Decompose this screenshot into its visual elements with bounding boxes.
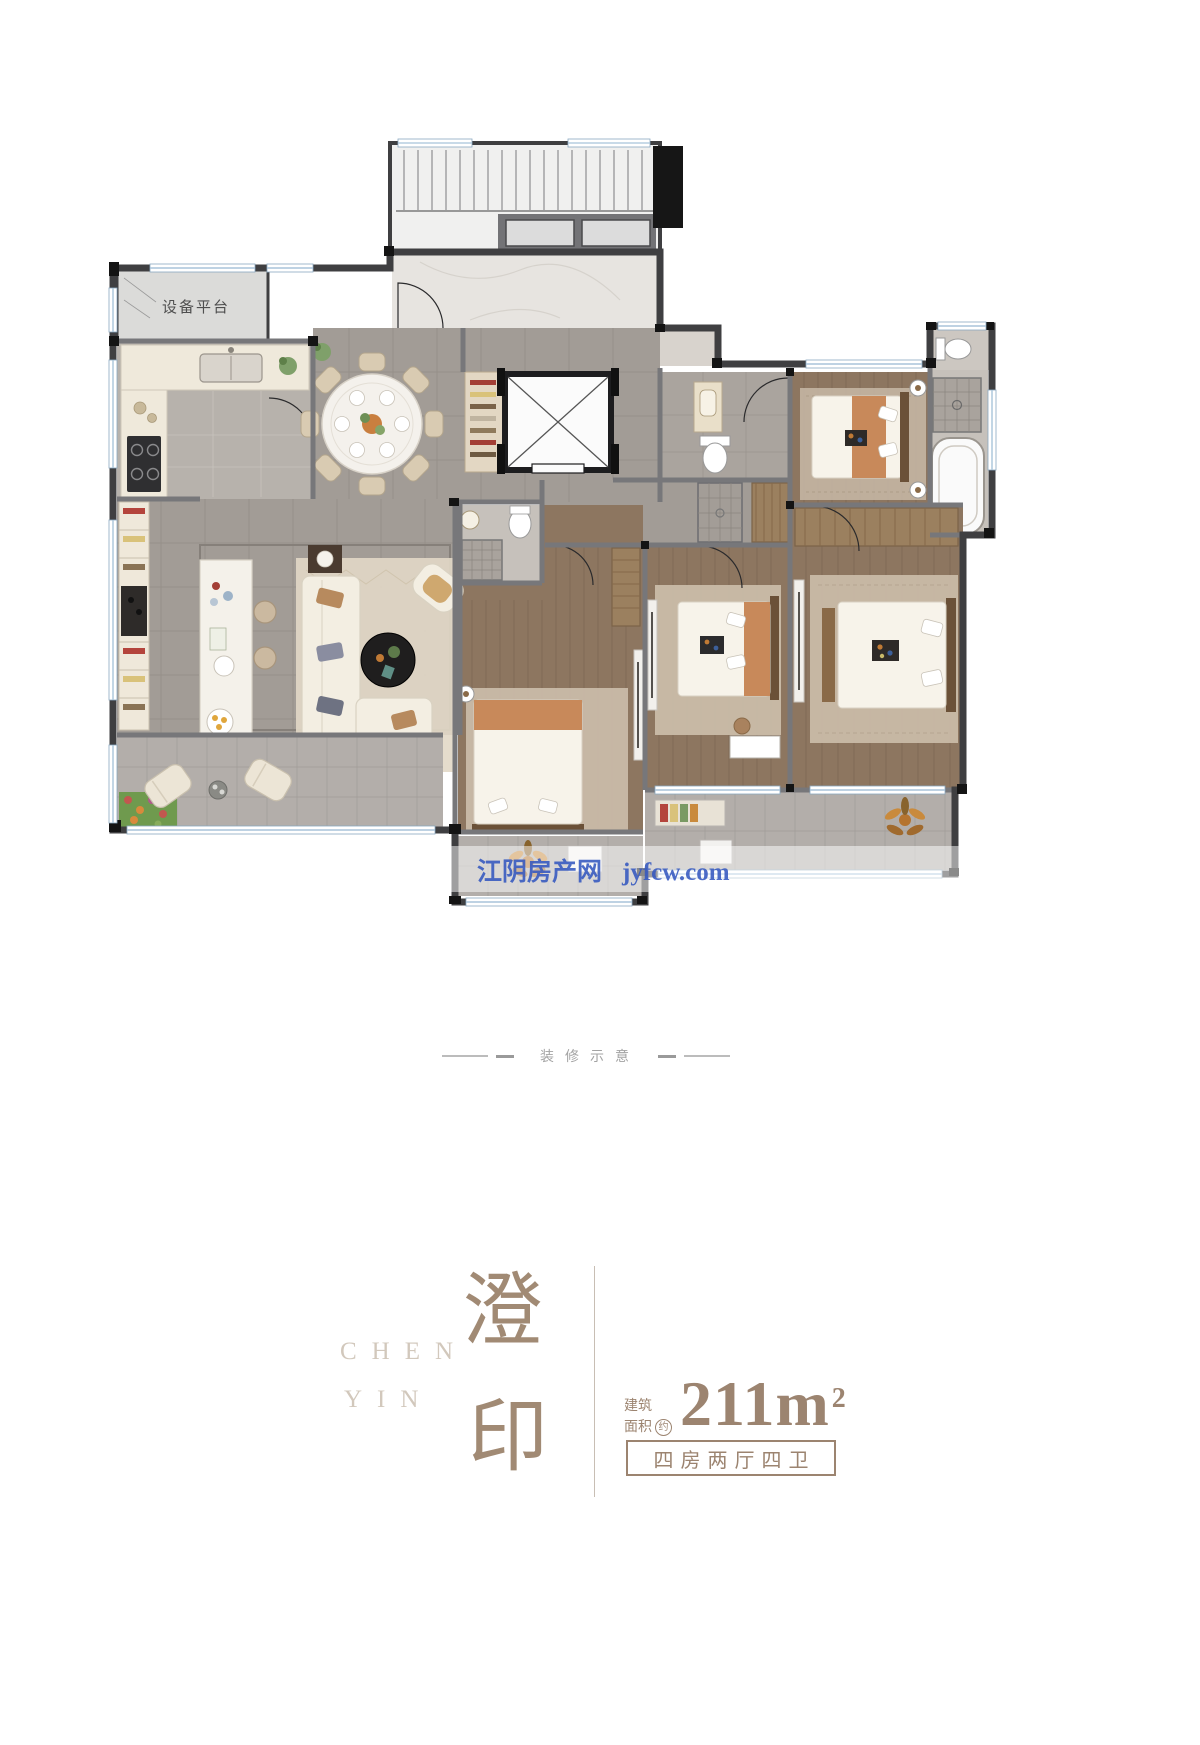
equipment-platform: 设备平台: [117, 270, 268, 340]
bedroom-top-right: [790, 372, 930, 505]
area-superscript: 2: [832, 1383, 846, 1414]
area-value: 211m: [680, 1368, 830, 1439]
kitchen: [117, 341, 313, 499]
divider-dash: [658, 1055, 676, 1058]
decoration-note-row: 装修示意: [0, 1044, 1186, 1068]
brand-latin-line2: YIN: [344, 1386, 433, 1414]
divider-line: [442, 1055, 488, 1057]
area-prefix: 建筑 面积 约: [624, 1380, 672, 1438]
divider-line: [684, 1055, 730, 1057]
layout-tag-box: 四房两厅四卫: [626, 1440, 836, 1476]
layout-tag: 四房两厅四卫: [654, 1444, 816, 1473]
watermark-site-url: jyfcw.com: [621, 859, 730, 886]
watermark-site-name: 江阴房产网: [477, 857, 602, 886]
area-label-line1: 建筑: [624, 1395, 672, 1417]
balcony-living: [117, 737, 443, 830]
brand-hanzi-1: 澄: [462, 1272, 542, 1352]
dining-table: [301, 353, 443, 495]
brand-latin-line1: CHEN: [340, 1338, 468, 1366]
floor-plan: 设备平台: [0, 0, 1200, 1040]
bedroom-master: [790, 505, 963, 790]
bedroom-bottom-left: [458, 505, 643, 833]
area-label-line2: 面积: [624, 1416, 652, 1438]
living-room: [117, 499, 468, 772]
decoration-note-label: 装修示意: [540, 1046, 640, 1066]
stair-core: [390, 139, 683, 252]
area-spec: 建筑 面积 约 211m2: [624, 1372, 846, 1438]
brand-divider: [594, 1266, 595, 1497]
floorplan-page: 设备平台: [0, 0, 1200, 1745]
bedroom-middle: [645, 545, 790, 790]
elevator-shaft: [505, 374, 611, 473]
brand-hanzi-2: 印: [468, 1398, 548, 1478]
approx-badge: 约: [655, 1419, 672, 1436]
divider-dash: [496, 1055, 514, 1058]
watermark: 江阴房产网jyfcw.com: [300, 846, 1000, 892]
equipment-platform-label: 设备平台: [162, 299, 230, 316]
